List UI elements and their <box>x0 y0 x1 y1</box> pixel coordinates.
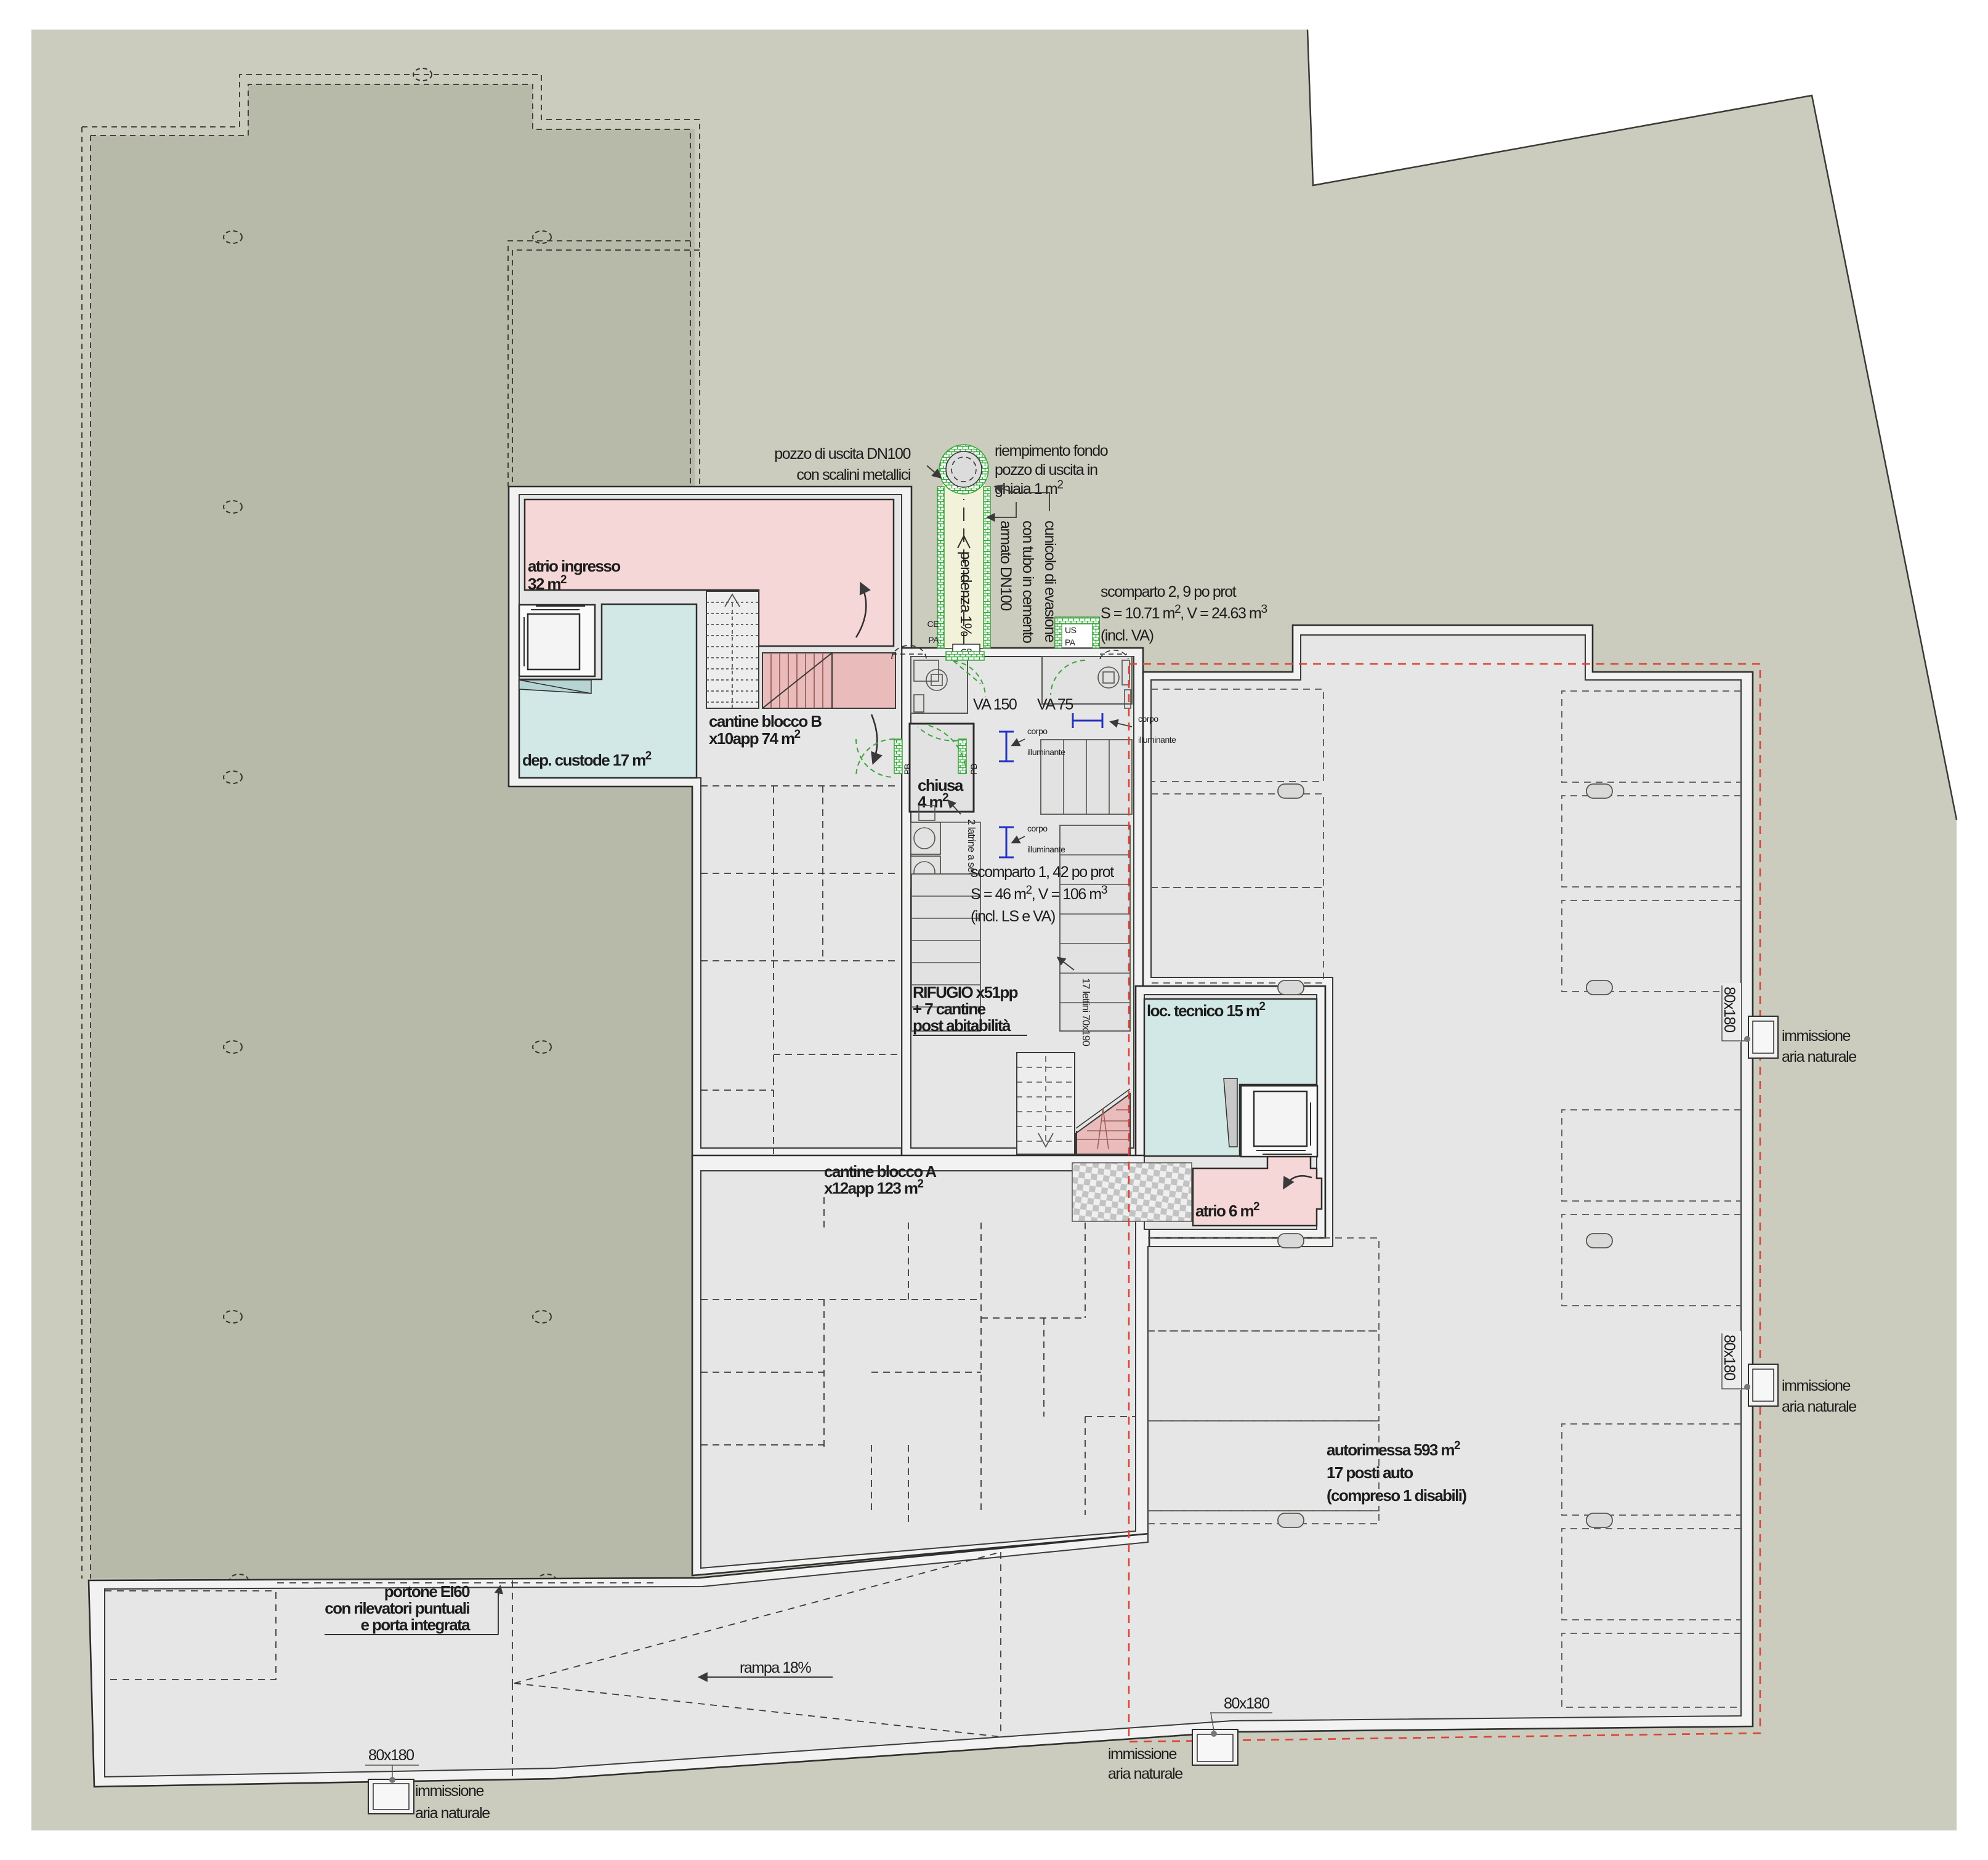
svg-text:atrio 6 m2: atrio 6 m2 <box>1195 1200 1259 1220</box>
svg-text:aria naturale: aria naturale <box>415 1805 490 1822</box>
svg-text:corpo: corpo <box>1138 714 1158 724</box>
svg-text:con scalini metallici: con scalini metallici <box>796 466 910 483</box>
svg-text:80x180: 80x180 <box>368 1747 414 1764</box>
svg-text:+ 7 cantine: + 7 cantine <box>913 1000 986 1018</box>
svg-text:x12app 123 m2: x12app 123 m2 <box>824 1178 923 1197</box>
svg-text:immissione: immissione <box>1782 1027 1851 1045</box>
svg-text:post abitabilità: post abitabilità <box>913 1016 1011 1035</box>
svg-text:PA: PA <box>1065 637 1076 647</box>
svg-text:PB: PB <box>969 764 979 775</box>
svg-text:loc. tecnico 15 m2: loc. tecnico 15 m2 <box>1147 1000 1265 1020</box>
svg-text:VA 75: VA 75 <box>1037 696 1073 713</box>
svg-text:PB: PB <box>902 764 912 775</box>
svg-text:RIFUGIO x51pp: RIFUGIO x51pp <box>913 983 1018 1001</box>
svg-text:con rilevatori puntuali: con rilevatori puntuali <box>325 1599 469 1617</box>
svg-text:aria naturale: aria naturale <box>1108 1765 1182 1782</box>
svg-text:ghiaia 1 m2: ghiaia 1 m2 <box>995 479 1063 498</box>
svg-text:portone EI60: portone EI60 <box>384 1582 470 1601</box>
svg-text:illuminante: illuminante <box>1138 735 1176 745</box>
svg-text:S = 46 m2, V = 106 m3: S = 46 m2, V = 106 m3 <box>971 884 1107 903</box>
svg-text:US: US <box>1065 625 1077 635</box>
svg-text:corpo: corpo <box>1027 726 1048 736</box>
svg-text:PA: PA <box>928 635 939 645</box>
svg-text:illuminante: illuminante <box>1027 747 1065 757</box>
svg-text:atrio ingresso: atrio ingresso <box>528 557 620 575</box>
svg-text:80x180: 80x180 <box>1224 1695 1269 1712</box>
svg-text:aria naturale: aria naturale <box>1782 1398 1856 1415</box>
svg-text:autorimessa 593 m2: autorimessa 593 m2 <box>1327 1439 1460 1459</box>
svg-text:riempimento fondo: riempimento fondo <box>995 442 1108 459</box>
svg-text:80x180: 80x180 <box>1721 987 1738 1032</box>
svg-text:aria naturale: aria naturale <box>1782 1048 1856 1065</box>
svg-text:immissione: immissione <box>415 1782 484 1800</box>
svg-text:S = 10.71 m2, V = 24.63 m3: S = 10.71 m2, V = 24.63 m3 <box>1101 603 1267 622</box>
svg-text:rampa 18%: rampa 18% <box>740 1659 811 1676</box>
svg-text:immissione: immissione <box>1108 1745 1177 1763</box>
svg-text:(incl. LS e VA): (incl. LS e VA) <box>971 908 1055 925</box>
svg-text:armato DN100: armato DN100 <box>997 520 1014 610</box>
svg-text:(incl. VA): (incl. VA) <box>1101 627 1154 644</box>
svg-text:scomparto 1, 42 po prot: scomparto 1, 42 po prot <box>971 863 1114 881</box>
svg-text:17 posti auto: 17 posti auto <box>1327 1463 1413 1482</box>
svg-text:illuminante: illuminante <box>1027 844 1065 854</box>
svg-text:chiusa: chiusa <box>918 776 964 795</box>
svg-text:VA 150: VA 150 <box>973 696 1017 713</box>
svg-text:17 lettini 70x190: 17 lettini 70x190 <box>1080 978 1092 1046</box>
svg-text:pozzo di uscita in: pozzo di uscita in <box>995 461 1097 479</box>
svg-text:(compreso 1 disabili): (compreso 1 disabili) <box>1327 1486 1466 1505</box>
svg-text:con tubo in cemento: con tubo in cemento <box>1019 520 1036 643</box>
svg-text:e porta integrata: e porta integrata <box>360 1615 471 1634</box>
svg-text:80x180: 80x180 <box>1721 1335 1738 1380</box>
svg-text:pozzo di uscita DN100: pozzo di uscita DN100 <box>774 445 910 463</box>
svg-text:cantine blocco B: cantine blocco B <box>709 712 822 730</box>
svg-text:scomparto 2, 9 po prot: scomparto 2, 9 po prot <box>1101 583 1237 600</box>
svg-text:dep. custode 17 m2: dep. custode 17 m2 <box>522 750 652 769</box>
svg-text:CE: CE <box>927 619 939 629</box>
svg-text:immissione: immissione <box>1782 1377 1851 1394</box>
svg-text:corpo: corpo <box>1027 823 1048 833</box>
svg-text:pendenza 1%: pendenza 1% <box>957 551 974 637</box>
svg-text:x10app 74 m2: x10app 74 m2 <box>709 728 801 748</box>
